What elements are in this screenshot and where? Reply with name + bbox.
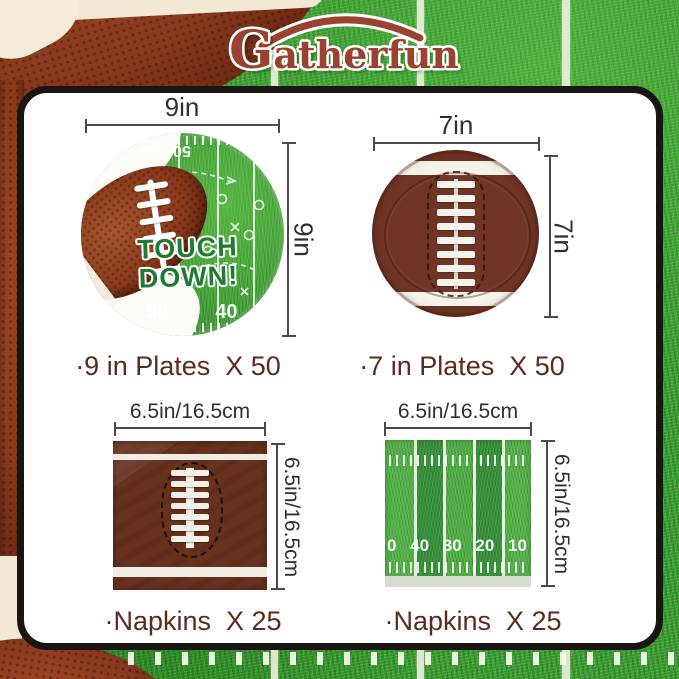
- plate-9in-image: 50 40 50 40 TOUCH DOWN!: [81, 133, 284, 336]
- product-infographic: Gatherfun 50 40 50 40: [0, 0, 679, 679]
- field-hash-row: [389, 562, 527, 573]
- dimension-label-plate7-height: 7in: [548, 207, 579, 267]
- dimension-label-napkin2-height: 6.5in/16.5cm: [549, 439, 573, 589]
- dimension-label-napkin1-width: 6.5in/16.5cm: [90, 400, 290, 424]
- napkin-football-image: [113, 441, 267, 590]
- napkin-field-image: 0 40 30 20 10: [385, 440, 531, 587]
- touchdown-text: TOUCH DOWN!: [86, 230, 284, 295]
- dimension-line-napkin1-width: [114, 427, 266, 429]
- yard-number: 10: [508, 536, 527, 556]
- dimension-line-napkin2-height: [546, 440, 548, 587]
- dimension-line-napkin2-width: [384, 427, 532, 429]
- grass-hash-marks: [128, 652, 679, 665]
- caption-plate9: ·9 in Plates X 50: [58, 351, 298, 382]
- yard-number: 30: [443, 536, 462, 556]
- napkin-fold-edge: [385, 576, 531, 587]
- dimension-label-plate9-width: 9in: [132, 92, 232, 123]
- dimension-label-plate9-height: 9in: [288, 210, 319, 270]
- caption-plate7: ·7 in Plates X 50: [342, 351, 582, 382]
- napkin-stripe: [113, 567, 267, 577]
- napkin-stripe: [113, 454, 267, 460]
- yard-numbers-row: 0 40 30 20 10: [385, 536, 531, 556]
- football-laces-icon: [436, 179, 476, 289]
- dimension-label-napkin1-height: 6.5in/16.5cm: [279, 442, 303, 592]
- brand-logo-text: Gatherfun: [226, 28, 462, 78]
- brand-logo: Gatherfun: [226, 12, 462, 88]
- caption-napkin2: ·Napkins X 25: [353, 606, 593, 637]
- dimension-line-plate7-width: [373, 142, 540, 144]
- dimension-label-plate7-width: 7in: [406, 110, 506, 141]
- yard-number: 0: [387, 536, 396, 556]
- plate-7in-image: [372, 150, 539, 317]
- yard-number: 40: [410, 536, 429, 556]
- dimension-label-napkin2-width: 6.5in/16.5cm: [358, 400, 558, 424]
- dimension-line-plate9-width: [85, 124, 280, 126]
- yard-number-top: 50 40: [142, 141, 191, 159]
- dimension-line-napkin1-height: [276, 443, 278, 590]
- field-hash-row: [389, 455, 527, 466]
- football-laces-icon: [169, 468, 211, 548]
- caption-napkin1: ·Napkins X 25: [73, 606, 313, 637]
- yard-number-bottom: 50 40: [146, 301, 238, 324]
- yard-number: 20: [475, 536, 494, 556]
